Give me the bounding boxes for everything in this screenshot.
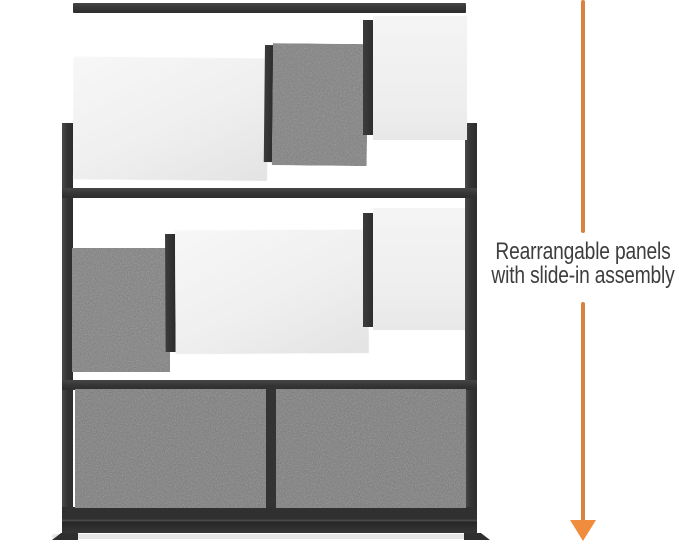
- product-feature-image: Rearrangable panels with slide-in assemb…: [0, 0, 679, 545]
- frame-right-foot: [464, 533, 490, 540]
- arrow-down-icon: [570, 520, 596, 541]
- whiteboard-panel-top-left: [73, 57, 268, 181]
- felt-panel-middle: [72, 248, 170, 372]
- frame-middle-rail: [62, 188, 477, 198]
- annotation-arrow-line-lower: [581, 302, 585, 521]
- panel-mount-bar: [165, 234, 176, 352]
- frame-base-rail: [62, 507, 477, 533]
- caption-line-1: Rearrangable panels: [463, 240, 679, 264]
- frame-right-post: [465, 123, 477, 533]
- whiteboard-panel-large-group: [165, 228, 369, 355]
- felt-panel-top-group: [264, 43, 368, 167]
- felt-panel-top: [272, 43, 368, 166]
- frame-top-bar: [73, 3, 466, 13]
- whiteboard-panel-middle-right: [373, 208, 465, 330]
- felt-panel-bottom-right: [276, 389, 466, 508]
- caption-line-2: with slide-in assembly: [463, 264, 679, 288]
- whiteboard-panel-large: [175, 230, 369, 354]
- felt-panel-bottom-left: [75, 389, 266, 508]
- annotation-arrow-line-upper: [581, 0, 585, 233]
- whiteboard-panel-top-right: [373, 16, 467, 140]
- frame-center-divider: [266, 385, 276, 510]
- caption: Rearrangable panels with slide-in assemb…: [463, 240, 679, 288]
- floor-shadow: [52, 534, 480, 539]
